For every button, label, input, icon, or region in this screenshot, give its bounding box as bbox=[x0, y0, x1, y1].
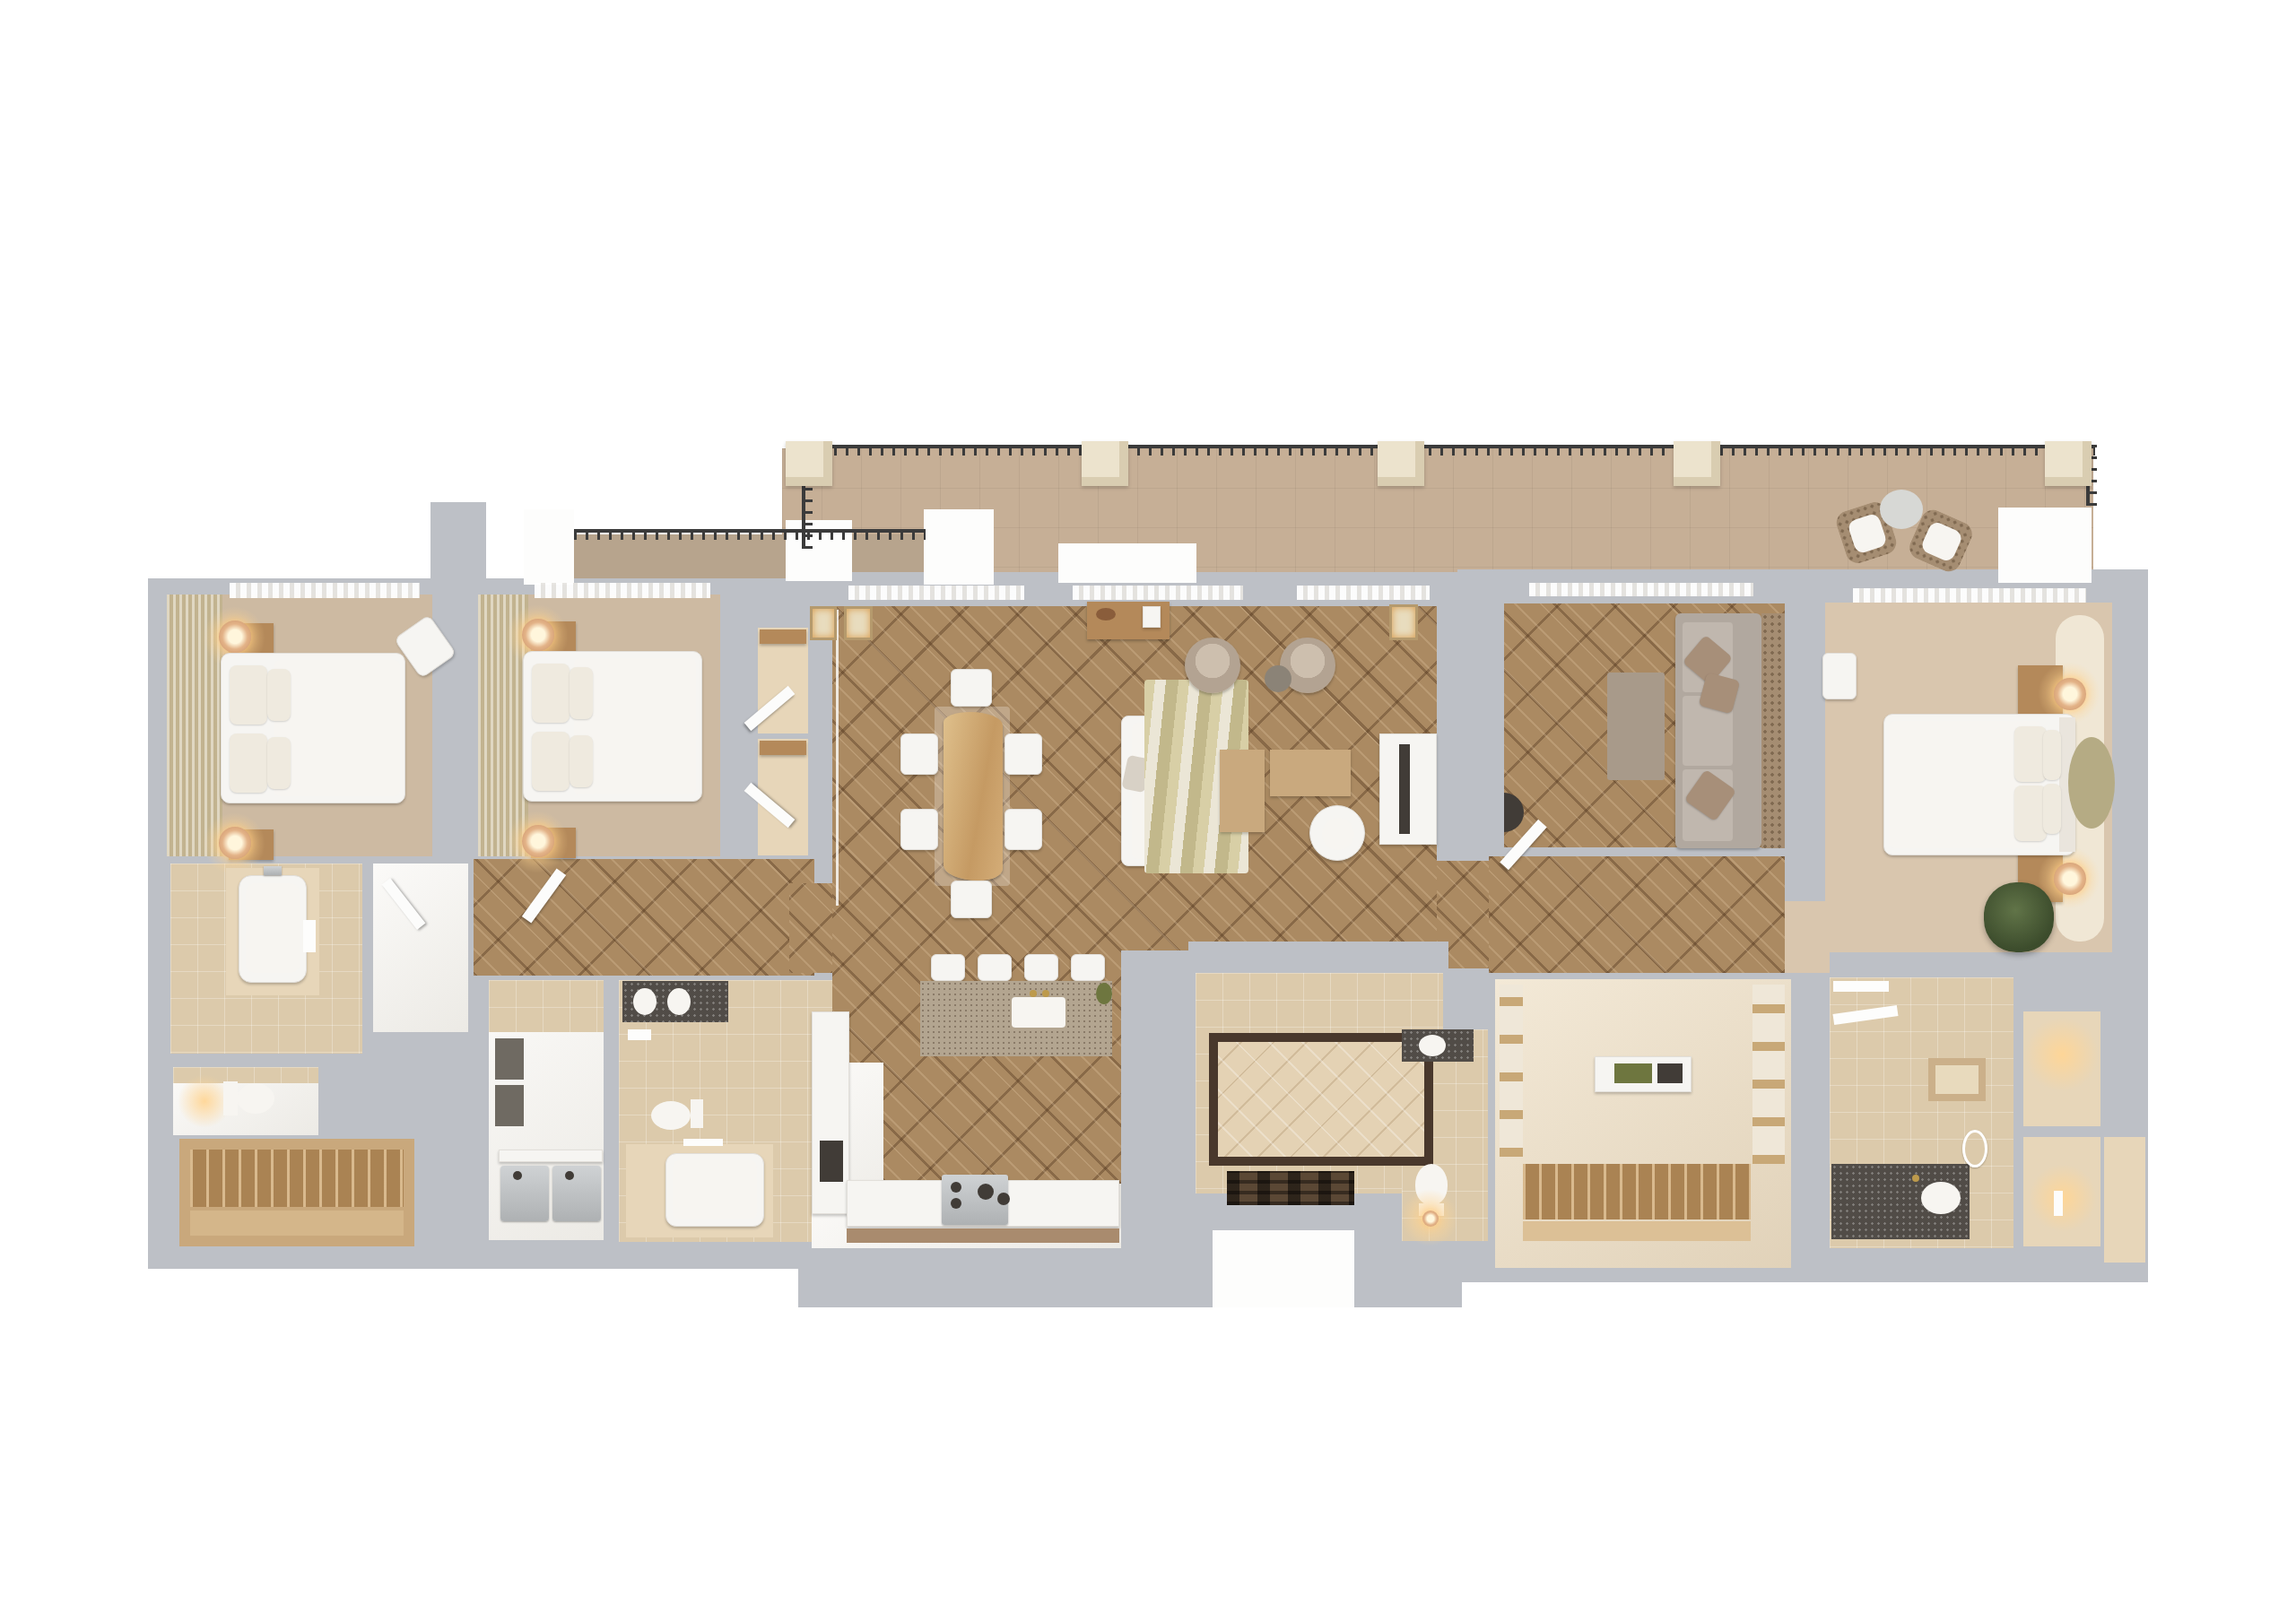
kitchen-left-cabinets bbox=[812, 1011, 849, 1214]
laundry-panel-b bbox=[495, 1085, 524, 1126]
bar-stool-2 bbox=[978, 954, 1012, 981]
window-den bbox=[1529, 583, 1753, 596]
washer bbox=[500, 1166, 549, 1221]
laundry-counter bbox=[499, 1150, 603, 1162]
kitchen-mosaic-strip bbox=[847, 1228, 1119, 1243]
bath2-sink-2 bbox=[667, 988, 691, 1015]
hall-right-parquet bbox=[1489, 856, 1785, 973]
wall-kitchen-foyer bbox=[1121, 950, 1198, 1307]
corner-room-floor bbox=[2104, 1137, 2145, 1263]
master-plant bbox=[1984, 882, 2054, 952]
console-bowl bbox=[1096, 608, 1116, 621]
bed1-pillow-1 bbox=[230, 665, 267, 725]
burner-1 bbox=[951, 1182, 961, 1193]
entry-opening bbox=[1213, 1230, 1354, 1307]
master-round-rug bbox=[2068, 737, 2115, 829]
powder-sink bbox=[1419, 1035, 1446, 1056]
bar-stool-4 bbox=[1071, 954, 1105, 981]
bed1-lamp-bottom bbox=[219, 827, 251, 859]
bed2-pillow-2 bbox=[532, 732, 570, 791]
dining-chair-left-2 bbox=[900, 809, 938, 850]
master-bench bbox=[1822, 653, 1857, 699]
wc1-toilet-tank bbox=[223, 1081, 238, 1115]
washer-knob bbox=[513, 1171, 522, 1180]
master-bath-shelf-1 bbox=[1833, 981, 1889, 992]
master-closet-ledge bbox=[1523, 1221, 1751, 1241]
bath1-tub-inner bbox=[246, 883, 300, 973]
laundry-tile bbox=[489, 980, 604, 1032]
floor-plan bbox=[0, 0, 2296, 1623]
column-1 bbox=[786, 441, 832, 486]
bed1-pillow-3 bbox=[267, 669, 291, 721]
dining-chair-right-2 bbox=[1004, 809, 1042, 850]
master-closet-tray-dark bbox=[1657, 1063, 1683, 1083]
dining-chair-left-1 bbox=[900, 733, 938, 775]
bed1-mattress bbox=[274, 660, 400, 796]
burner-4 bbox=[997, 1193, 1010, 1205]
bar-stool-3 bbox=[1024, 954, 1058, 981]
window-living-3 bbox=[1297, 586, 1430, 600]
armchair-1 bbox=[1185, 638, 1240, 693]
master-pillow-3 bbox=[2043, 730, 2061, 780]
bath2-sink-1 bbox=[633, 988, 657, 1015]
column-3 bbox=[1378, 441, 1424, 486]
master-closet-organizer bbox=[1523, 1164, 1751, 1219]
shower-a-glow bbox=[2025, 1017, 2099, 1092]
wall-living-foyer bbox=[1188, 942, 1448, 976]
master-sink bbox=[1921, 1182, 1961, 1214]
master-pillow-1 bbox=[2014, 726, 2047, 782]
corridor-link-left bbox=[789, 883, 834, 973]
bath1-towel bbox=[303, 920, 316, 952]
living-lantern-1 bbox=[810, 606, 837, 640]
burner-3 bbox=[978, 1184, 994, 1200]
side-table bbox=[1265, 665, 1291, 692]
coffee-table-2 bbox=[1270, 750, 1351, 796]
window-bed2 bbox=[535, 583, 710, 598]
bath2-towel bbox=[628, 1029, 651, 1040]
bath1-faucet bbox=[264, 866, 282, 875]
closet1-organizer bbox=[190, 1150, 404, 1207]
swivel-chair-seat bbox=[1322, 818, 1354, 850]
burner-2 bbox=[951, 1198, 961, 1209]
block-left-notch bbox=[430, 502, 486, 583]
bar-stool-1 bbox=[931, 954, 965, 981]
terrace-railing-top bbox=[787, 445, 2095, 456]
terrace-wall-chunk-2 bbox=[1998, 508, 2092, 583]
island-plant bbox=[1096, 983, 1112, 1004]
window-living-2 bbox=[1073, 586, 1243, 600]
shower-b-glow bbox=[2029, 1164, 2097, 1232]
bath2-toilet-bowl bbox=[651, 1101, 691, 1130]
master-closet-tray-green bbox=[1614, 1063, 1652, 1083]
living-lantern-3 bbox=[1389, 604, 1418, 640]
bed2-closet-shelf-b bbox=[760, 741, 806, 755]
shower-head bbox=[2054, 1191, 2063, 1216]
powder-candle bbox=[1422, 1211, 1439, 1227]
glass-partition bbox=[836, 610, 839, 906]
dining-table-live-edge bbox=[944, 712, 1003, 881]
hall-master-link bbox=[1785, 901, 1830, 973]
den-coffee-table bbox=[1607, 673, 1665, 780]
master-lamp-bottom bbox=[2054, 863, 2086, 895]
coffee-table-1 bbox=[1220, 750, 1265, 832]
entry-mat bbox=[1227, 1171, 1354, 1205]
window-master bbox=[1853, 588, 2086, 603]
tv-screen bbox=[1399, 744, 1410, 834]
window-bed1 bbox=[230, 583, 420, 598]
master-lamp-top bbox=[2054, 678, 2086, 710]
bed2-closet-shelf-a bbox=[760, 629, 806, 644]
living-lantern-2 bbox=[844, 606, 873, 640]
kitchen-oven bbox=[820, 1141, 843, 1182]
master-closet-rail-left bbox=[1500, 985, 1523, 1157]
bath2-toilet-tank bbox=[691, 1099, 703, 1128]
bed2-lamp-bottom bbox=[522, 825, 554, 857]
bed1-pillow-4 bbox=[267, 737, 291, 789]
bed2-pillow-3 bbox=[570, 667, 593, 719]
dryer-knob bbox=[565, 1171, 574, 1180]
closet1-ledge bbox=[190, 1211, 404, 1236]
terrace-wall-chunk-1 bbox=[1058, 543, 1196, 583]
laundry-panel-a bbox=[495, 1038, 524, 1080]
den-wicker-bench bbox=[1761, 613, 1785, 848]
console-frame bbox=[1143, 606, 1161, 628]
terrace-table bbox=[1880, 490, 1923, 529]
master-faucet bbox=[1912, 1175, 1919, 1182]
island-sink bbox=[1012, 997, 1065, 1028]
column-2 bbox=[1082, 441, 1128, 486]
wc1-toilet-bowl bbox=[237, 1083, 274, 1114]
column-4 bbox=[1674, 441, 1720, 486]
master-pillow-4 bbox=[2043, 784, 2061, 834]
dryer bbox=[552, 1166, 601, 1221]
dining-chair-bottom bbox=[951, 881, 992, 918]
column-5 bbox=[2045, 441, 2092, 486]
dining-chair-right-1 bbox=[1004, 733, 1042, 775]
master-bath-art-inner bbox=[1935, 1065, 1979, 1094]
master-towel-ring bbox=[1962, 1130, 1987, 1167]
master-pillow-2 bbox=[2014, 785, 2047, 841]
bed2-lamp-top bbox=[522, 619, 554, 651]
master-closet-shelves-right bbox=[1752, 985, 1785, 1164]
bed2-pillow-1 bbox=[532, 664, 570, 723]
bed1-pillow-2 bbox=[230, 733, 267, 793]
dining-chair-top bbox=[951, 669, 992, 707]
bath2-towel-bar bbox=[683, 1139, 723, 1146]
foyer-border-frame bbox=[1209, 1033, 1433, 1166]
terrace-wall-chunk-4 bbox=[524, 509, 574, 585]
island-faucet-2 bbox=[1042, 990, 1049, 997]
terrace-wall-chunk-3 bbox=[924, 509, 994, 585]
bed2-pillow-4 bbox=[570, 735, 593, 787]
balcony-railing bbox=[574, 529, 926, 540]
window-living-1 bbox=[848, 586, 1024, 600]
bath2-tub-inner bbox=[673, 1160, 757, 1219]
bed1-lamp-top bbox=[219, 621, 251, 653]
island-faucet-1 bbox=[1030, 990, 1037, 997]
